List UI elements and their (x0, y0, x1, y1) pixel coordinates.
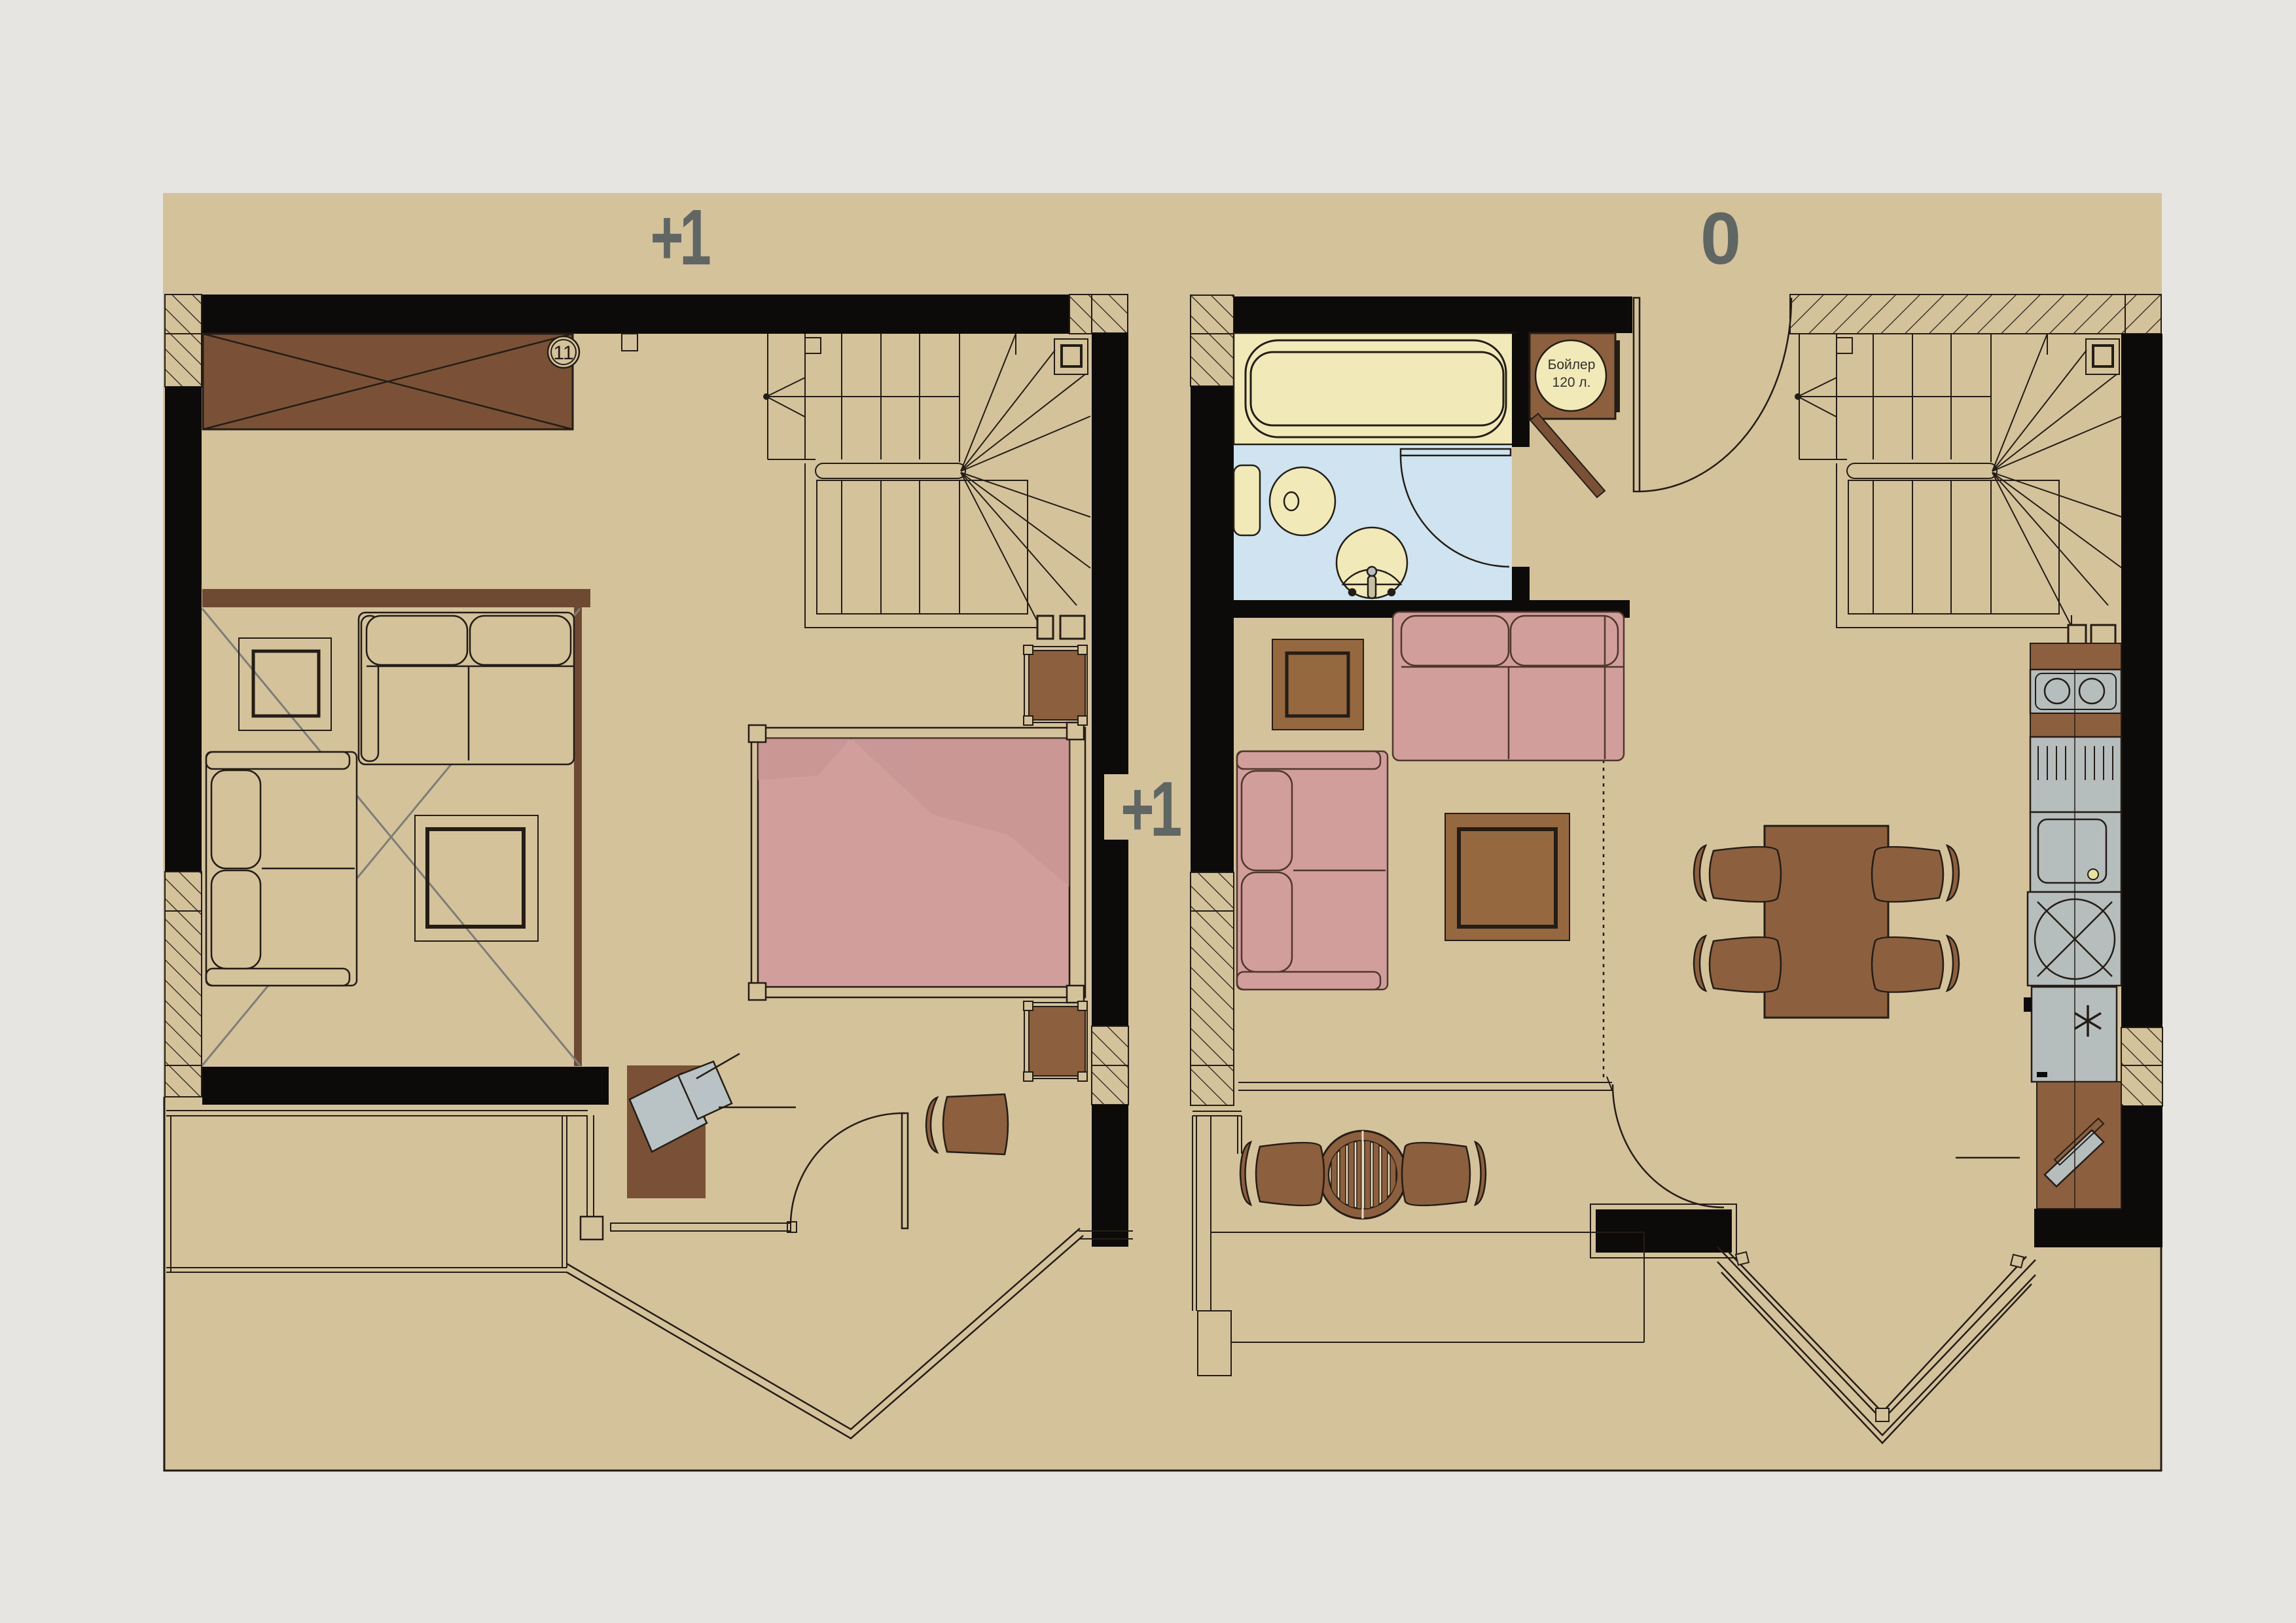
svg-text:+1: +1 (650, 193, 709, 281)
svg-text:120 л.: 120 л. (1552, 375, 1591, 390)
svg-text:0: 0 (1700, 198, 1741, 279)
svg-text:Бойлер: Бойлер (1548, 357, 1596, 372)
svg-text:11: 11 (553, 342, 573, 364)
svg-text:+1: +1 (1121, 766, 1181, 853)
